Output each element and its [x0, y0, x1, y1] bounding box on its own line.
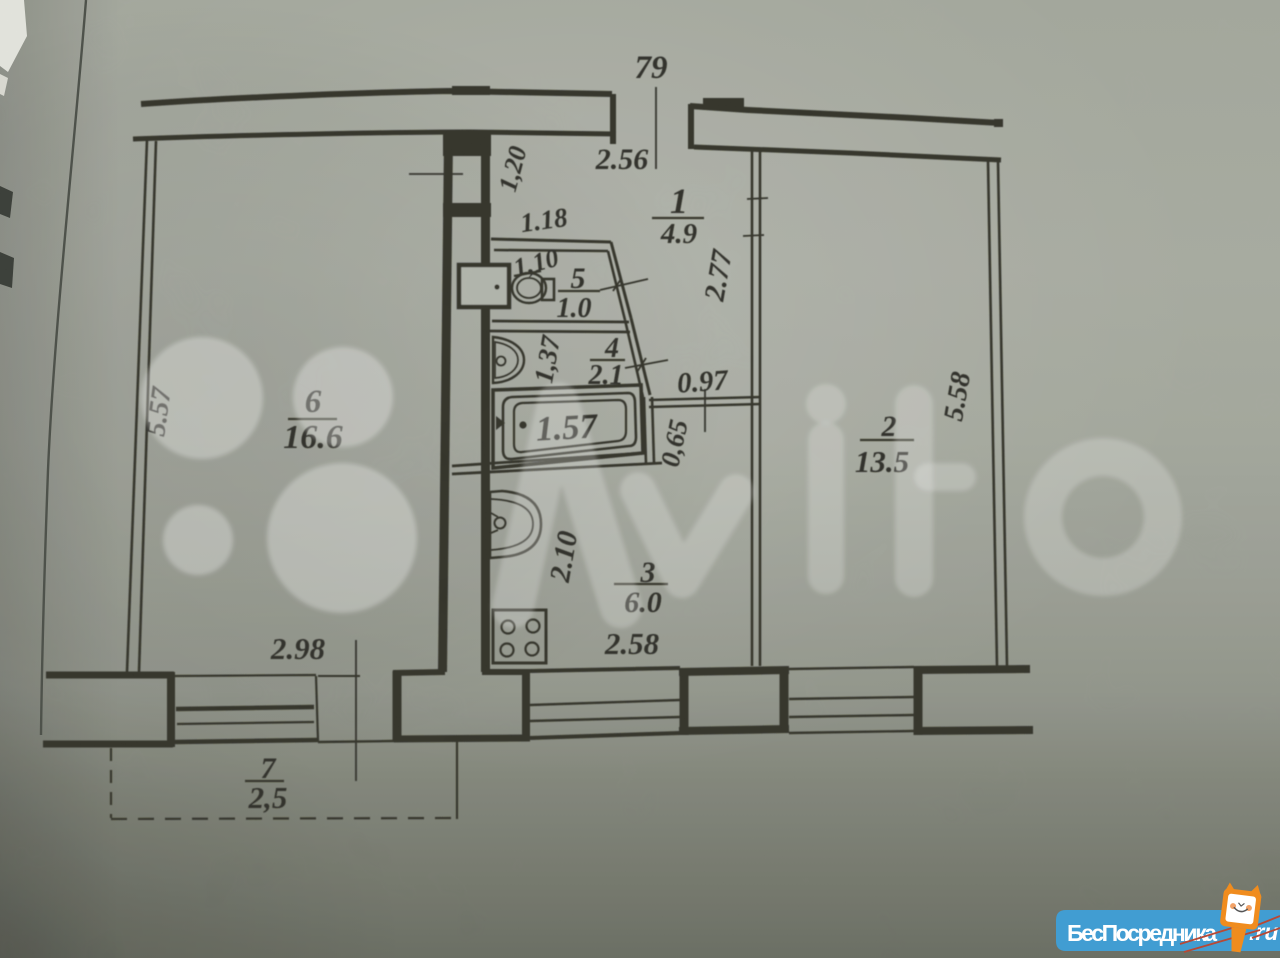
- svg-text:БесПосредника: БесПосредника: [1067, 920, 1217, 946]
